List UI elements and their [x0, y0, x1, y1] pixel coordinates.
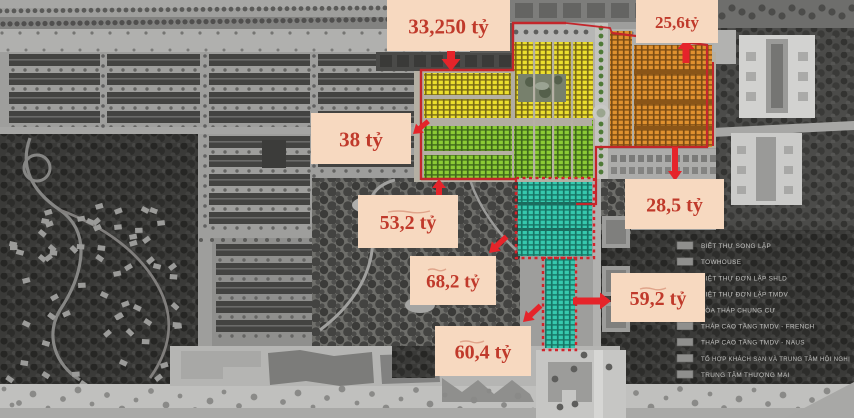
- svg-text:TRUNG TÂM THƯỢNG MẠI: TRUNG TÂM THƯỢNG MẠI: [701, 370, 790, 379]
- svg-text:28,5 tỷ: 28,5 tỷ: [646, 195, 703, 217]
- svg-text:TOWHOUSE: TOWHOUSE: [701, 259, 741, 266]
- svg-text:53,2 tỷ: 53,2 tỷ: [380, 212, 437, 234]
- svg-text:BIỆT THỰ ĐƠN LẬP TMDV: BIỆT THỰ ĐƠN LẬP TMDV: [701, 289, 788, 298]
- svg-text:59,2 tỷ: 59,2 tỷ: [630, 288, 687, 310]
- svg-text:TÒA THÁP CHUNG CƯ: TÒA THÁP CHUNG CƯ: [701, 306, 776, 315]
- svg-text:33,250 tỷ: 33,250 tỷ: [408, 15, 489, 39]
- svg-text:BIỆT THỰ ĐƠN LẬP SHLD: BIỆT THỰ ĐƠN LẬP SHLD: [701, 273, 787, 282]
- svg-text:TỔ HỢP KHÁCH SẠN VÀ TRUNG TÂM: TỔ HỢP KHÁCH SẠN VÀ TRUNG TÂM HỘI NGHỊ: [701, 356, 850, 363]
- svg-text:25,6tỷ: 25,6tỷ: [655, 13, 699, 32]
- svg-text:BIỆT THỰ SONG LẬP: BIỆT THỰ SONG LẬP: [701, 241, 771, 250]
- svg-text:38 tỷ: 38 tỷ: [339, 128, 383, 152]
- svg-text:68,2 tỷ: 68,2 tỷ: [426, 272, 480, 293]
- svg-text:60,4 tỷ: 60,4 tỷ: [455, 342, 512, 364]
